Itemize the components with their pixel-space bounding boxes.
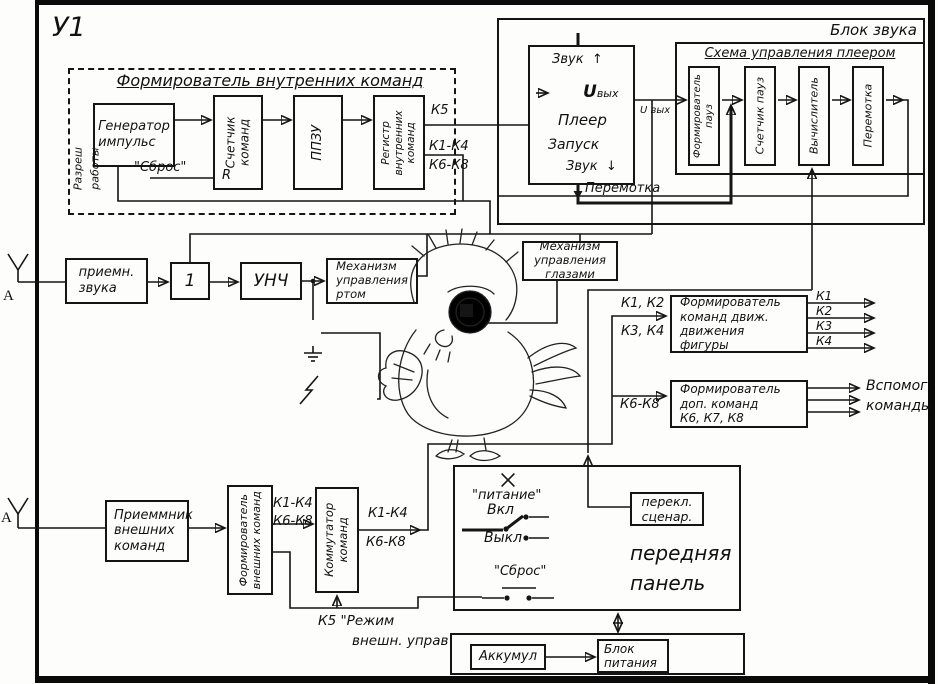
- player-start: Запуск: [548, 137, 599, 154]
- movement-former-block: Формирователь команд движ. движения фигу…: [670, 295, 808, 353]
- internal-former-title: Формирователь внутренних команд: [92, 72, 448, 91]
- k5-out-label: К5: [431, 103, 449, 118]
- down-arrow-icon: ↓: [606, 159, 617, 174]
- antenna-a-label-bottom: А: [1, 510, 12, 528]
- k5-mode-label-1: К5 "Режим: [318, 614, 394, 630]
- psu-block: Блок питания: [597, 639, 669, 673]
- k1k4-out-label: К1-К4: [429, 139, 469, 154]
- uout-wire-label: U вых: [640, 105, 670, 117]
- commutator-out-k6k8-label: К6-К8: [366, 535, 406, 550]
- external-k1k4-label: К1-К4: [273, 496, 313, 511]
- page-title: У1: [52, 12, 86, 44]
- up-arrow-icon: ↑: [592, 52, 603, 67]
- resistor-symbol: [305, 281, 321, 353]
- front-panel-title: передняя панель: [630, 538, 731, 598]
- aux-in-label: К6-К8: [620, 397, 660, 412]
- speaker-icon: [300, 376, 377, 418]
- sound-waves-icon: [300, 376, 318, 404]
- reset-label-internal: "Сброс": [134, 160, 186, 175]
- ground-icon: [304, 353, 322, 361]
- aux-out-label-1: Вспомог.: [866, 378, 932, 395]
- commutator-out-k1k4-label: К1-К4: [368, 506, 408, 521]
- power-off-label: Выкл: [484, 530, 522, 547]
- shaper-one-block: 1: [170, 262, 210, 300]
- rom-label: ППЗУ: [310, 100, 326, 186]
- antenna-a-label-top: А: [3, 288, 14, 306]
- player-sound-bottom: Звук ↓: [566, 159, 617, 174]
- aux-former-block: Формирователь доп. команд К6, К7, К8: [670, 380, 808, 428]
- movement-out-k3: К3: [816, 319, 832, 333]
- command-counter-block: Счетчик команд: [213, 95, 263, 190]
- movement-in34-label: К3, К4: [621, 324, 664, 339]
- player-sound-top: Звук ↑: [552, 52, 603, 67]
- antenna-icon-top: [8, 254, 28, 282]
- bird-pupil: [460, 304, 473, 317]
- rewind-block: Перемотка: [852, 66, 884, 166]
- player-control-title: Схема управления плеером: [678, 46, 922, 61]
- external-former-block: Формирователь внешних команд: [227, 485, 273, 595]
- k5-mode-label-2: внешн. управ: [352, 634, 448, 650]
- power-on-label: Вкл: [487, 502, 514, 519]
- schematic-page: У1 Формирователь внутренних команд Генер…: [0, 0, 938, 684]
- external-receiver-block: Приеммник внешних команд: [105, 500, 189, 562]
- movement-in12-label: К1, К2: [621, 296, 664, 311]
- rom-block: ППЗУ: [293, 95, 343, 190]
- battery-block: Аккумул: [470, 644, 546, 670]
- movement-out-k2: К2: [816, 304, 832, 318]
- internal-register-label: Регистр внутренних команд: [380, 99, 418, 187]
- counter-reset-pin: R: [222, 168, 231, 183]
- player-rewind-label: Перемотка: [585, 181, 660, 196]
- movement-out-k1: К1: [816, 289, 832, 303]
- panel-reset-label: "Сброс": [494, 564, 546, 579]
- pulse-generator-block: Генератор импульс: [93, 103, 175, 167]
- aux-out-label-2: команды: [866, 398, 932, 415]
- commutator-block: Коммутатор команд: [315, 487, 359, 593]
- movement-out-k4: К4: [816, 334, 832, 348]
- internal-register-block: Регистр внутренних команд: [373, 95, 425, 190]
- pause-counter-block: Счетчик пауз: [744, 66, 776, 166]
- pulse-generator-label: Генератор импульс: [98, 119, 170, 150]
- player-name: Плеер: [558, 112, 607, 130]
- calculator-block: Вычислитель: [798, 66, 830, 166]
- sound-block-title: Блок звука: [805, 22, 917, 40]
- enable-label-2: работы: [87, 133, 103, 205]
- amplifier-block: УНЧ: [240, 262, 302, 300]
- player-uout: Uвых: [583, 82, 619, 102]
- scenario-switch-block: перекл. сценар.: [630, 492, 704, 526]
- external-k6k8-label: К6-К8: [273, 514, 313, 529]
- mouth-mechanism-block: Механизм управления ртом: [326, 258, 418, 304]
- eyes-mechanism-block: Механизм управления глазами: [522, 241, 618, 281]
- pause-former-block: Формирователь пауз: [688, 66, 720, 166]
- enable-label-1: Разреш: [70, 133, 86, 205]
- sound-receiver-block: приемн. звука: [65, 258, 148, 304]
- k6k8-out-label: К6-К8: [429, 158, 469, 173]
